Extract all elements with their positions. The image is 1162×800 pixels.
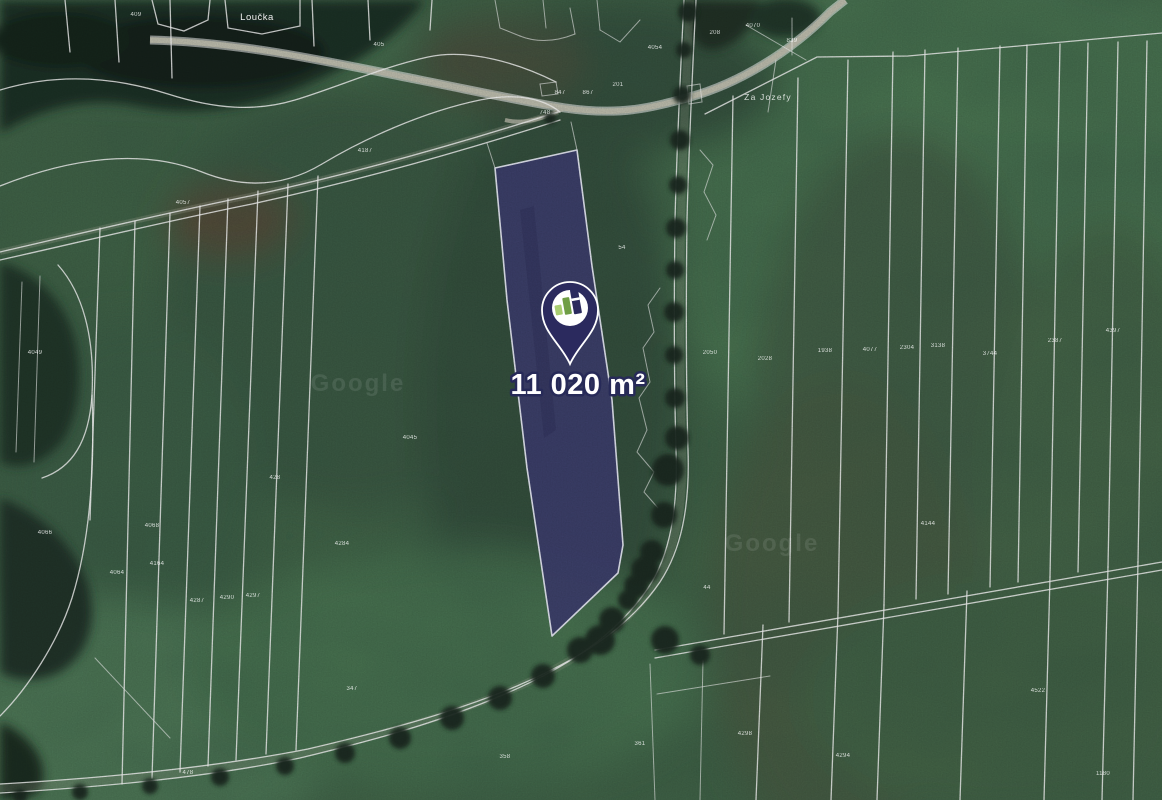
parcel-number-label: 4068 xyxy=(145,523,160,529)
parcel-number-label: 4290 xyxy=(220,595,235,601)
google-watermark: Google xyxy=(311,370,406,397)
parcel-number-label: 4054 xyxy=(648,45,663,51)
parcel-number-label: 347 xyxy=(347,686,358,692)
parcel-number-label: 4294 xyxy=(836,753,851,759)
parcel-number-label: 748 xyxy=(540,110,551,116)
parcel-number-label: 361 xyxy=(635,741,646,747)
parcel-number-label: 4066 xyxy=(38,530,53,536)
google-watermark: Google xyxy=(725,530,820,557)
parcel-number-label: 4049 xyxy=(28,350,43,356)
parcel-number-label: 405 xyxy=(374,42,385,48)
parcel-number-label: 4187 xyxy=(358,148,373,154)
parcel-number-label: 4297 xyxy=(246,593,261,599)
parcel-number-label: 4397 xyxy=(1106,328,1121,334)
parcel-number-label: 44 xyxy=(703,585,711,591)
place-label: Loučka xyxy=(240,12,274,23)
parcel-number-label: 1180 xyxy=(1096,771,1110,777)
parcel-number-label: 208 xyxy=(710,30,721,36)
parcel-number-label: 2050 xyxy=(703,350,718,356)
parcel-number-label: 4070 xyxy=(746,23,761,29)
parcel-number-label: 839 xyxy=(787,38,798,44)
parcel-number-label: 4287 xyxy=(190,598,205,604)
parcel-number-label: 867 xyxy=(583,90,594,96)
parcel-number-label: 4144 xyxy=(921,521,936,527)
map-canvas[interactable]: GoogleGoogle 409405405420840708398478672… xyxy=(0,0,1162,800)
parcel-number-label: 1938 xyxy=(818,348,833,354)
satellite-map[interactable]: GoogleGoogle 409405405420840708398478672… xyxy=(0,0,1162,800)
parcel-number-label: 4284 xyxy=(335,541,350,547)
parcel-number-label: 4522 xyxy=(1031,688,1046,694)
parcel-number-label: 4164 xyxy=(150,561,165,567)
parcel-number-label: 409 xyxy=(131,12,142,18)
parcel-number-label: 4045 xyxy=(403,435,418,441)
parcel-number-label: 2387 xyxy=(1048,338,1063,344)
parcel-number-label: 201 xyxy=(613,82,624,88)
parcel-number-label: 3744 xyxy=(983,351,998,357)
parcel-number-label: 3138 xyxy=(931,343,946,349)
parcel-number-label: 478 xyxy=(183,770,194,776)
parcel-number-label: 428 xyxy=(270,475,281,481)
parcel-number-label: 358 xyxy=(500,754,511,760)
field-name-label: Za Jozefy xyxy=(744,92,792,102)
parcel-number-label: 2304 xyxy=(900,345,915,351)
parcel-number-label: 4057 xyxy=(176,200,191,206)
parcel-number-label: 54 xyxy=(618,245,626,251)
parcel-number-label: 4298 xyxy=(738,731,753,737)
parcel-number-label: 4077 xyxy=(863,347,878,353)
parcel-number-label: 2028 xyxy=(758,356,773,362)
parcel-number-label: 4064 xyxy=(110,570,125,576)
parcel-area-label: 11 020 m² xyxy=(510,369,645,401)
parcel-number-label: 847 xyxy=(555,90,566,96)
